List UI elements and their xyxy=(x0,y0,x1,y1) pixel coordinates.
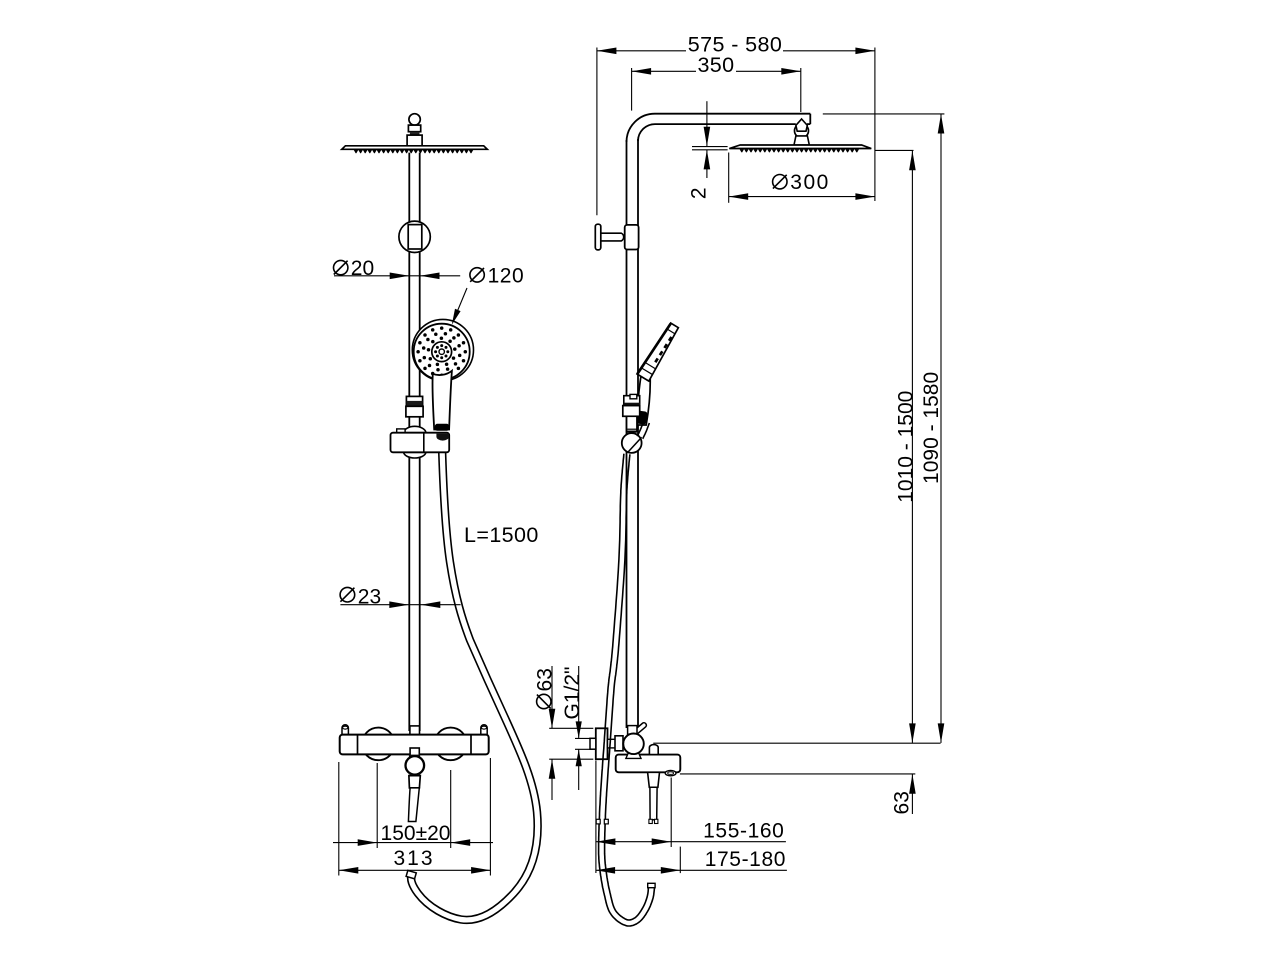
svg-text:120: 120 xyxy=(488,264,525,287)
svg-text:G1/2": G1/2" xyxy=(561,667,584,720)
svg-text:1010 - 1500: 1010 - 1500 xyxy=(894,391,917,503)
svg-text:300: 300 xyxy=(790,171,830,194)
svg-text:20: 20 xyxy=(351,257,374,280)
svg-text:313: 313 xyxy=(393,847,434,870)
svg-text:23: 23 xyxy=(358,585,381,608)
svg-text:2: 2 xyxy=(688,187,711,199)
svg-text:63: 63 xyxy=(890,791,913,814)
svg-text:L=1500: L=1500 xyxy=(464,523,539,547)
svg-text:155-160: 155-160 xyxy=(703,820,784,843)
svg-text:63: 63 xyxy=(533,668,556,691)
svg-text:175-180: 175-180 xyxy=(705,848,786,871)
svg-text:350: 350 xyxy=(697,53,734,77)
svg-text:1090 - 1580: 1090 - 1580 xyxy=(920,372,943,484)
svg-text:150±20: 150±20 xyxy=(381,822,451,845)
